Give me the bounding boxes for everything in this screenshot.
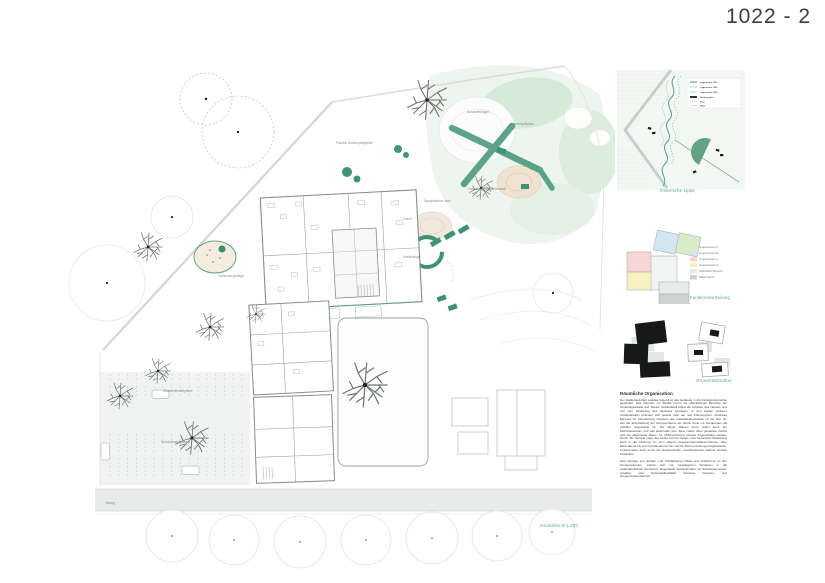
competition-board: 1022 - 2 (0, 0, 825, 583)
zone-group-d (627, 272, 651, 290)
label-water-playground: Wasserspielplatz (510, 122, 534, 126)
massing-cores (688, 322, 730, 377)
courtyard (338, 318, 428, 466)
label-climbing-hill: Kletterhügel (403, 255, 420, 259)
legend-row: Gruppenraum D (690, 263, 746, 268)
zone-group-b (653, 230, 679, 254)
legend-row: Gruppenraum B (690, 251, 746, 256)
text-block: Räumliche Organisation Der städtebaulich… (620, 391, 727, 482)
legend-label: Gruppenraum B (699, 252, 718, 255)
legend-label: Gruppenraum C (699, 258, 718, 261)
existing-buildings (452, 390, 545, 470)
map-legend-item: Lippeverlauf 1815 (700, 81, 718, 84)
label-topographic-island: Topografische Insel (423, 199, 451, 203)
legend-swatch (690, 251, 697, 256)
label-tunnel: Tunnel (402, 217, 412, 221)
playground-landscape (412, 65, 615, 352)
label-visitor-parking: Besucherstellplätze (161, 440, 189, 444)
legend-swatch (690, 269, 697, 274)
text-paragraph: Eine Spange aus Sanitär- und Schlafräume… (620, 460, 727, 479)
label-movement-landscape: Holzbewegungslandschaft (468, 187, 505, 191)
function-legend: Gruppenraum A Gruppenraum B Gruppenraum … (690, 245, 746, 280)
text-heading: Räumliche Organisation (620, 391, 727, 396)
label-pavilion: Pavillon Außenspielgeräte (336, 141, 373, 145)
legend-swatch (690, 263, 697, 268)
structure-diagram (614, 318, 748, 380)
massing-solid (624, 320, 671, 378)
legend-row: Öffentlicher Bereich (690, 269, 746, 274)
legend-label: Nebenräume (699, 276, 715, 279)
map-legend-item: Neubaugebiet (700, 96, 714, 99)
street-tree-row (146, 509, 575, 568)
map-legend-item: Lippeverlauf 1938 (700, 91, 718, 94)
legend-label: Gruppenraum A (699, 246, 718, 249)
site-map-caption: historische Lippe (660, 188, 770, 193)
legend-label: Öffentlicher Bereich (699, 270, 723, 273)
label-street: Talweg (105, 501, 115, 505)
map-legend-item: Lippeverlauf 1900 (700, 86, 718, 89)
zone-group-c (627, 252, 651, 272)
legend-swatch (690, 257, 697, 262)
legend-row: Gruppenraum C (690, 257, 746, 262)
legend-row: Gruppenraum A (690, 245, 746, 250)
zone-public (659, 282, 689, 294)
building-bottom-wing (254, 395, 335, 484)
function-diagram-caption: Funktionsverteilung (655, 295, 765, 300)
legend-label: Gruppenraum D (699, 264, 718, 267)
map-legend-item: Weg (700, 102, 705, 104)
historic-site-map: Lippeverlauf 1815 Lippeverlauf 1900 Lipp… (617, 70, 745, 190)
map-legend-item: Wald (700, 106, 706, 108)
structure-diagram-caption: Grundrissstruktur (672, 378, 756, 383)
plan-caption: Grundriss M 1:200 (498, 523, 578, 528)
site-plan: Pavillon Außenspielgeräte Aussichtshügel… (0, 0, 615, 583)
legend-row: Nebenräume (690, 275, 746, 280)
animal-enclosure (194, 241, 236, 273)
building-upper-wing (260, 190, 422, 322)
site-map-legend: Lippeverlauf 1815 Lippeverlauf 1900 Lipp… (687, 78, 741, 108)
building-left-wing (249, 301, 334, 395)
label-animal-enclosure: Kaninchengehege (218, 274, 244, 278)
label-lookout-hill: Aussichtshügel (467, 110, 489, 114)
label-staff-parking: Mitarbeiterstellplätze (163, 389, 192, 393)
text-paragraph: Der städtebaulichen Leitidee folgend ist… (620, 399, 727, 457)
legend-swatch (690, 275, 697, 280)
board-number: 1022 - 2 (726, 5, 811, 29)
legend-swatch (690, 245, 697, 250)
